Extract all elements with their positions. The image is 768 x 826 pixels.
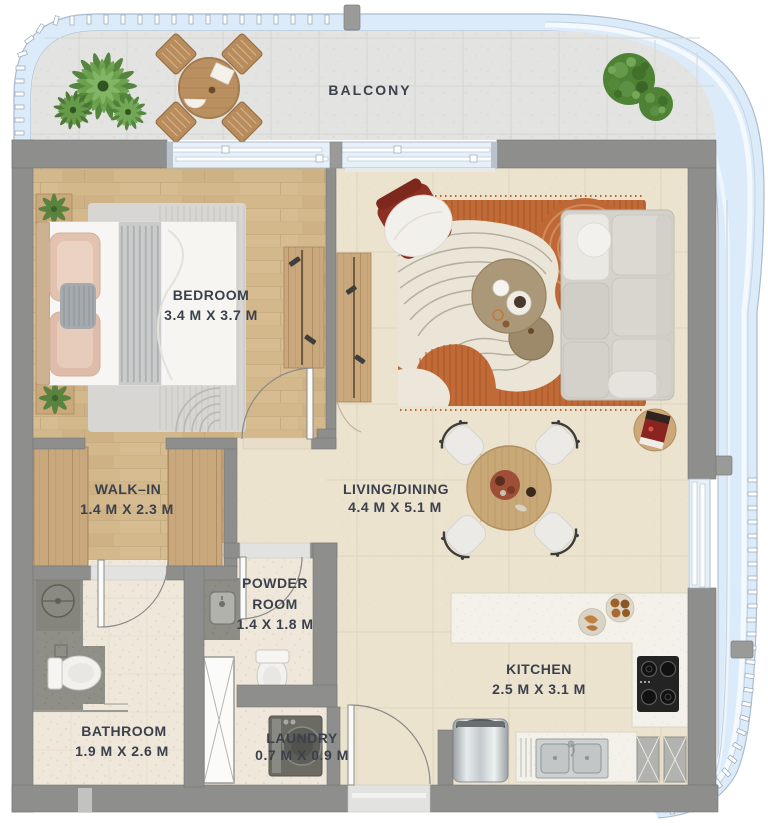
svg-text:1.4 X 1.8 M: 1.4 X 1.8 M [236,616,313,632]
svg-text:1.4 M X 2.3 M: 1.4 M X 2.3 M [80,501,174,517]
svg-text:KITCHEN: KITCHEN [506,661,572,677]
svg-text:LAUNDRY: LAUNDRY [266,730,338,746]
svg-text:LIVING/DINING: LIVING/DINING [343,481,449,497]
svg-text:1.9 M X 2.6 M: 1.9 M X 2.6 M [75,743,169,759]
svg-text:BEDROOM: BEDROOM [173,287,250,303]
svg-text:2.5 M X 3.1 M: 2.5 M X 3.1 M [492,681,586,697]
svg-text:0.7 M X 0.9 M: 0.7 M X 0.9 M [255,747,349,763]
svg-text:3.4 M X 3.7 M: 3.4 M X 3.7 M [164,307,258,323]
svg-text:BALCONY: BALCONY [328,82,411,98]
svg-text:POWDER: POWDER [242,575,308,591]
svg-text:4.4 M X 5.1 M: 4.4 M X 5.1 M [348,499,442,515]
svg-text:WALK–IN: WALK–IN [95,481,162,497]
svg-text:BATHROOM: BATHROOM [81,723,166,739]
svg-text:ROOM: ROOM [252,596,298,612]
